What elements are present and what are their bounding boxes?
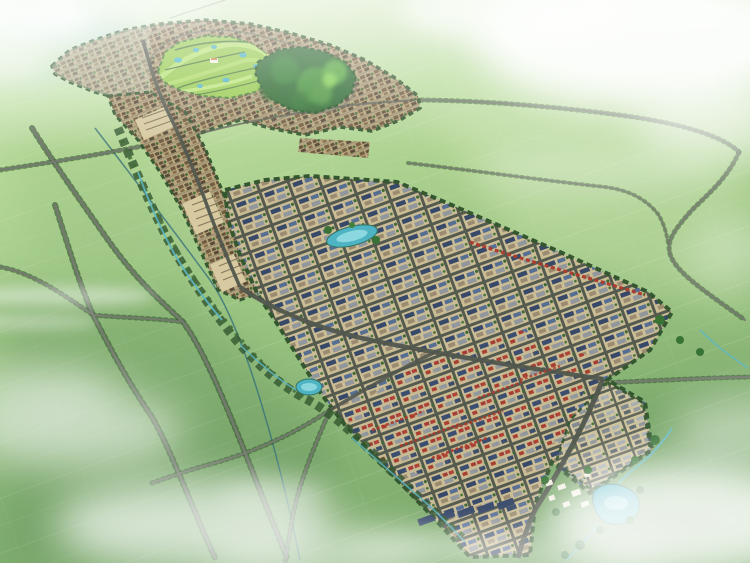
masterplan-aerial-rendering <box>0 0 750 563</box>
aerial-scene-canvas <box>0 0 750 563</box>
atmosphere-veil <box>0 0 750 563</box>
